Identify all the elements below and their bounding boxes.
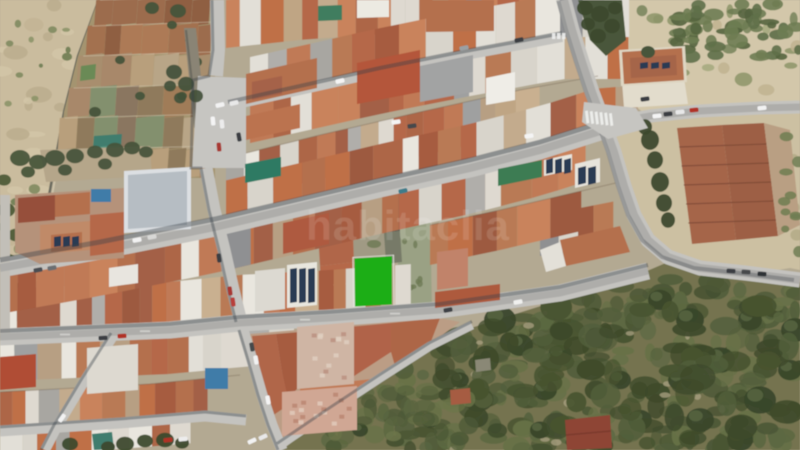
svg-text:habitaclia: habitaclia (306, 202, 510, 249)
